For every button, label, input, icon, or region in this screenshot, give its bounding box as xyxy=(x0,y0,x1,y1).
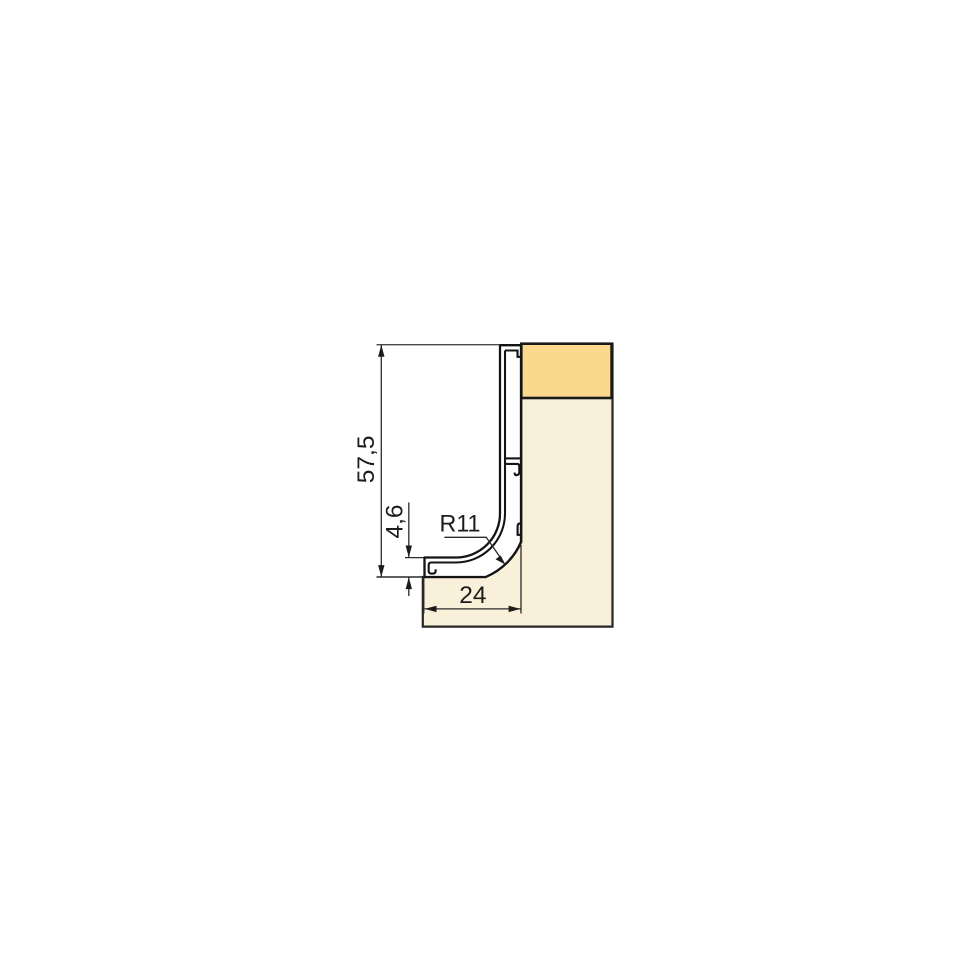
svg-text:4,6: 4,6 xyxy=(381,504,408,538)
svg-text:57,5: 57,5 xyxy=(353,436,380,484)
svg-text:R11: R11 xyxy=(440,511,481,538)
svg-text:24: 24 xyxy=(459,582,486,609)
